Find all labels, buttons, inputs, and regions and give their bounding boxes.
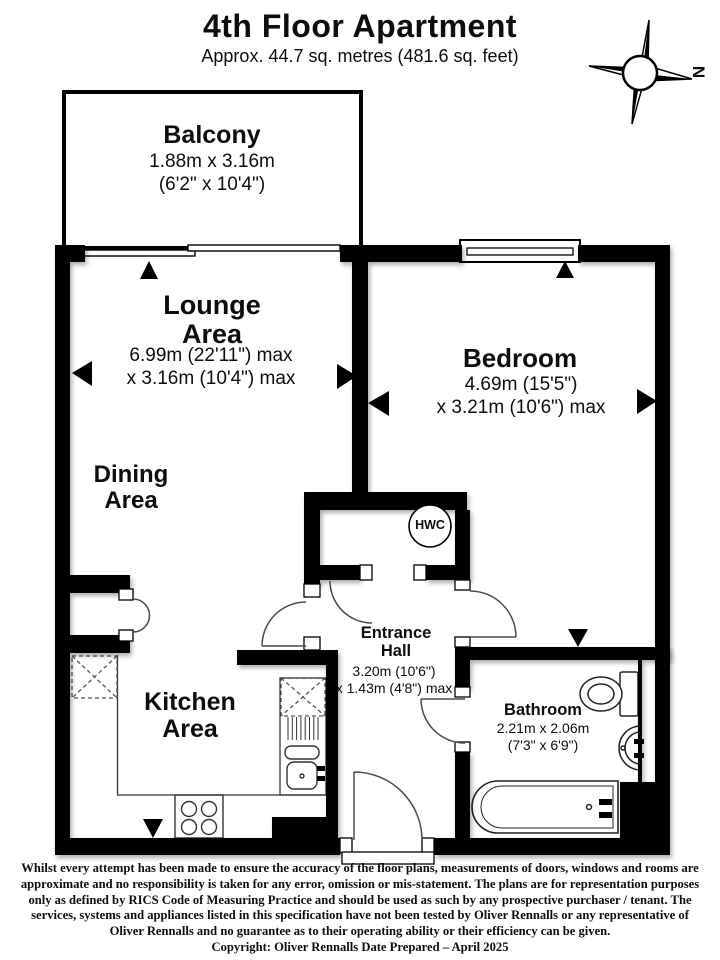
copyright-line: Copyright: Oliver Rennalls Date Prepared… <box>0 940 720 956</box>
bathroom-label: Bathroom <box>504 701 582 719</box>
page-subtitle: Approx. 44.7 sq. metres (481.6 sq. feet) <box>0 46 720 67</box>
bedroom-arrow-left <box>368 391 389 416</box>
bedroom-arrow-up <box>556 261 574 278</box>
disclaimer-line: Whilst every attempt has been made to en… <box>0 861 720 877</box>
compass-north-label: N <box>688 66 708 78</box>
bedroom-arrow-right <box>637 389 657 414</box>
bedroom-dims: 4.69m (15'5") x 3.21m (10'6") max <box>437 374 606 420</box>
storage-recess-door <box>133 599 150 632</box>
entrance-door <box>354 772 422 840</box>
entrance-hall-dims: 3.20m (10'6") x 1.43m (4'8") max <box>336 663 453 697</box>
disclaimer-line: Oliver Rennalls and no guarantee as to t… <box>0 924 720 940</box>
bath <box>472 781 618 833</box>
balcony-dims: 1.88m x 3.16m (6'2" x 10'4") <box>149 151 275 197</box>
hob <box>175 795 223 838</box>
entrance-hall-label: Entrance Hall <box>361 624 432 661</box>
kitchen-label: Kitchen Area <box>144 689 236 743</box>
page-title: 4th Floor Apartment <box>0 8 720 45</box>
floor-plan-page: 4th Floor Apartment Approx. 44.7 sq. met… <box>0 0 720 960</box>
sink-taps <box>317 766 325 781</box>
disclaimer-line: services, systems and appliances listed … <box>0 908 720 924</box>
window <box>460 240 580 262</box>
hwc-label: HWC <box>415 518 445 532</box>
toilet <box>580 672 638 716</box>
disclaimer-line: only as defined by RICS Code of Measurin… <box>0 893 720 909</box>
dining-label: Dining Area <box>94 462 169 514</box>
sink-bowls <box>285 746 319 789</box>
bathroom-door <box>421 699 465 743</box>
bathroom-dims: 2.21m x 2.06m (7'3" x 6'9") <box>497 720 590 754</box>
bedroom-door <box>470 591 516 637</box>
balcony-label: Balcony <box>163 122 260 149</box>
lounge-dims: 6.99m (22'11") max x 3.16m (10'4") max <box>127 345 296 391</box>
bathroom-arrow-down <box>568 629 588 647</box>
drainer-lines <box>288 717 318 740</box>
hall-dining-door <box>262 602 306 646</box>
kitchen-fixtures <box>72 655 326 838</box>
kitchen-arrow-down <box>143 819 163 838</box>
footer-disclaimer: Whilst every attempt has been made to en… <box>0 861 720 956</box>
bedroom-label: Bedroom <box>463 344 577 372</box>
lounge-arrow-left <box>72 361 92 386</box>
hwc-cupboard-door <box>330 581 372 623</box>
lounge-arrow-up <box>140 261 158 279</box>
disclaimer-line: approximate and no responsibility is tak… <box>0 877 720 893</box>
lounge-label: Lounge Area <box>163 291 260 349</box>
